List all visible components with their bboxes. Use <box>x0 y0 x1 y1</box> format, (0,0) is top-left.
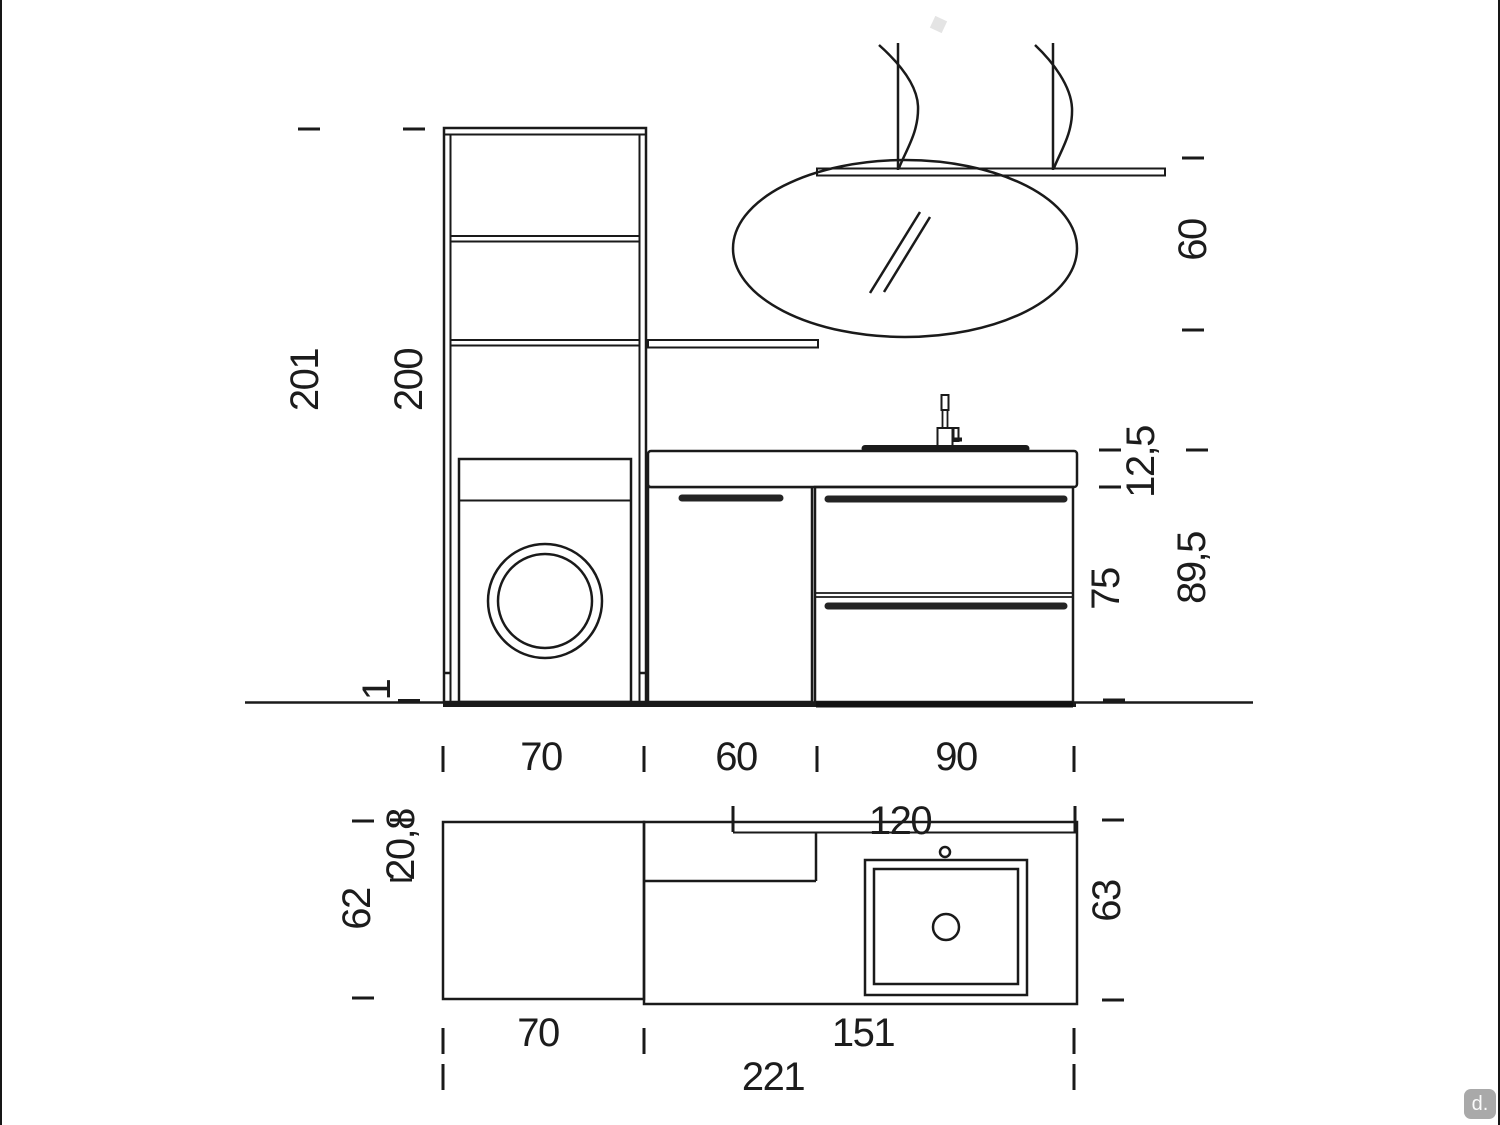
dim-door-unit-width-label: 60 <box>715 737 757 777</box>
plan-door-unit-step <box>644 832 816 881</box>
dim-drawer-unit-width-label: 90 <box>935 737 977 777</box>
dim-plan-worktop-depth-label: 63 <box>1087 880 1127 922</box>
dim-plinth-height-label: 1 <box>357 680 397 701</box>
washing-machine <box>459 459 631 702</box>
plan-washer-bay <box>443 822 644 999</box>
dim-washer-column-width-label: 70 <box>520 737 562 777</box>
faucet <box>938 395 963 449</box>
technical-drawing-page: 201 200 1 60 12,5 89,5 75 70 60 90 120 6… <box>0 0 1500 1125</box>
dim-mirror-height-label: 60 <box>1173 219 1213 261</box>
dim-column-height-label: 200 <box>389 349 429 411</box>
drain-hole <box>933 914 959 940</box>
dim-total-unit-height-label: 89,5 <box>1172 532 1212 604</box>
wall-shelf-lower <box>648 340 818 348</box>
glass-reflection-mark <box>870 212 920 293</box>
dim-plan-shelf-depth-label: 20,8 <box>381 809 421 881</box>
watermark-diamond <box>930 16 947 33</box>
door-base-unit <box>648 487 812 702</box>
brand-watermark-text: d. <box>1472 1093 1489 1116</box>
brand-watermark-badge: d. <box>1464 1089 1496 1119</box>
dim-total-height-label: 201 <box>285 349 325 411</box>
dim-plan-worktop-width-label: 151 <box>832 1013 894 1053</box>
dim-plan-washer-width-label: 70 <box>517 1013 559 1053</box>
plan-counter-outline <box>644 822 1077 1004</box>
dim-plan-washer-depth-label: 62 <box>337 888 377 930</box>
dim-plan-total-width-label: 221 <box>742 1057 804 1097</box>
plan-view <box>352 820 1124 1090</box>
faucet-hole <box>940 847 950 857</box>
furniture-drawing <box>0 0 1500 1125</box>
elevation-view <box>245 16 1253 832</box>
dim-basin-top-width-label: 120 <box>869 801 931 841</box>
tall-cabinet <box>443 128 647 702</box>
countertop-with-basin <box>648 449 1077 488</box>
pendant-cords <box>879 43 1072 170</box>
drawer-base-unit <box>815 487 1073 705</box>
mirror <box>733 160 1077 337</box>
dim-worktop-height-label: 12,5 <box>1121 426 1161 498</box>
dim-base-unit-height-label: 75 <box>1086 568 1126 610</box>
plan-sink <box>865 847 1027 995</box>
glass-reflection-mark <box>884 217 930 292</box>
